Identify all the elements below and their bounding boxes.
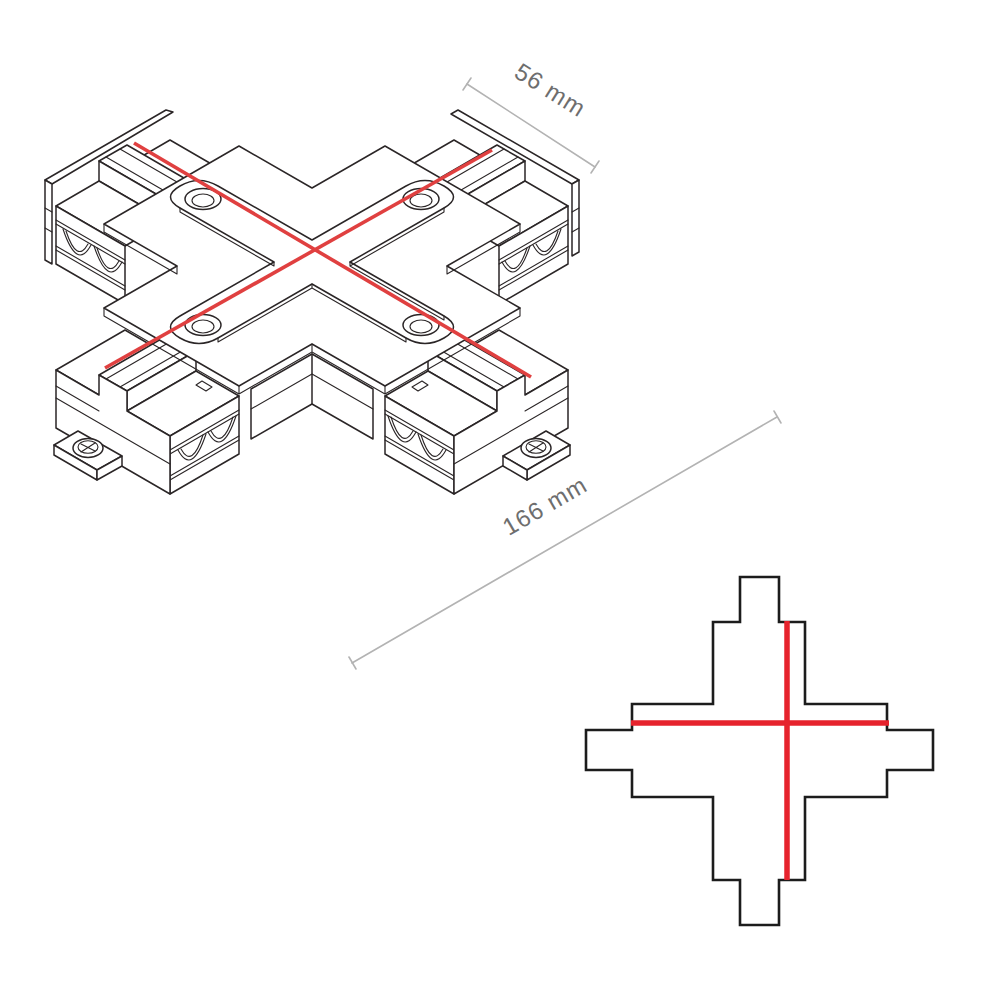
phillips-screw-icon bbox=[521, 439, 551, 458]
dimension-tick bbox=[463, 78, 471, 90]
isometric-connector-view bbox=[45, 110, 579, 494]
dimension-width-label: 56 mm bbox=[510, 58, 591, 122]
dimension-tick bbox=[349, 657, 356, 669]
technical-drawing: 56 mm 166 mm bbox=[0, 0, 1000, 1000]
arm-end-cap-side bbox=[45, 180, 52, 264]
dimension-tick bbox=[591, 161, 599, 173]
dimension-tick bbox=[774, 411, 781, 423]
cross-section-profile bbox=[586, 577, 933, 925]
dimension-length-label: 166 mm bbox=[498, 471, 592, 541]
phillips-screw-icon bbox=[73, 439, 103, 458]
arm-end-cap-side bbox=[572, 180, 579, 256]
page: 56 mm 166 mm bbox=[0, 0, 1000, 1000]
profile-outline bbox=[586, 577, 933, 925]
